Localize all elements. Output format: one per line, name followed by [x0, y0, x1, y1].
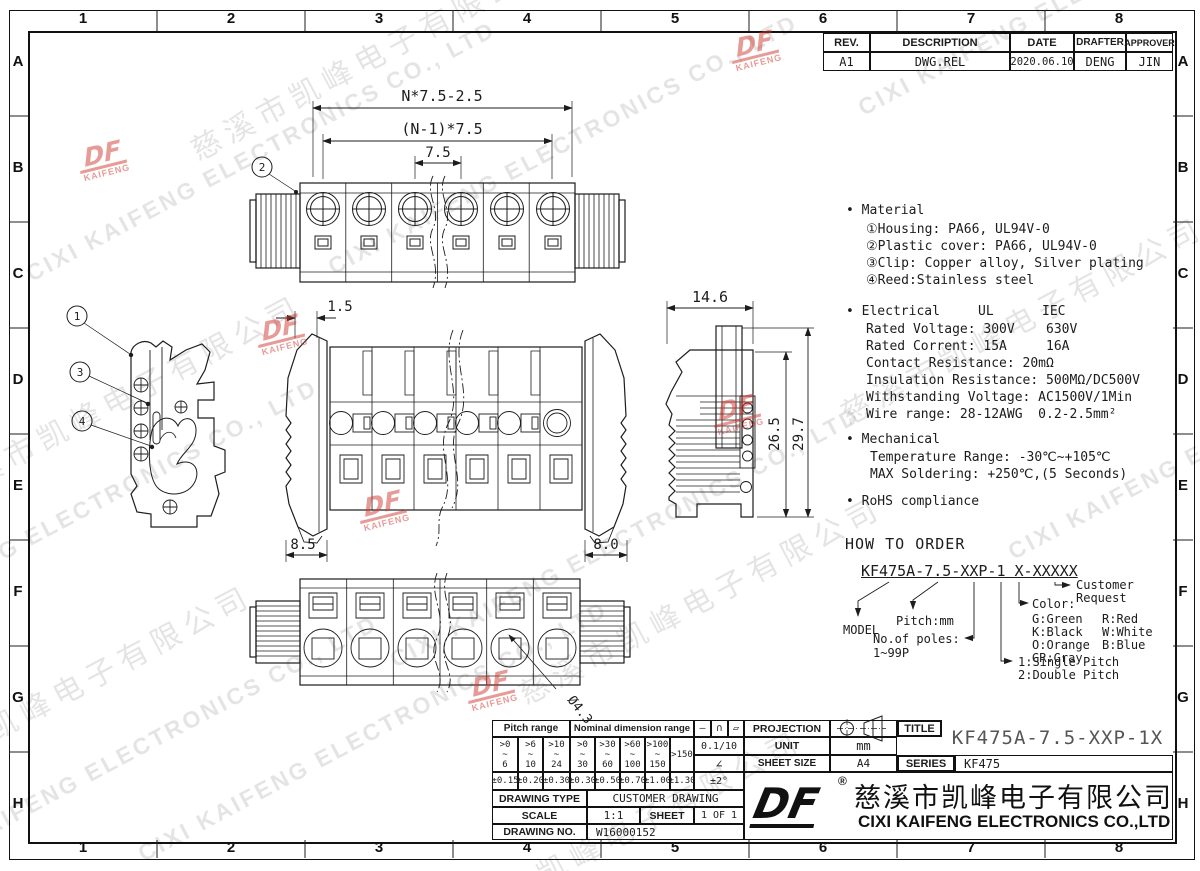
range-cell: >30~60	[595, 737, 620, 772]
order-color: GR:Gray	[1032, 651, 1083, 665]
range-tilde: ~	[548, 750, 564, 760]
tol-value: ±1.30	[670, 772, 694, 790]
dim-8-0: 8.0	[593, 537, 618, 553]
company-logo: DF	[749, 784, 822, 828]
unit-value: mm	[830, 737, 897, 755]
company-name-cn: 慈溪市凯峰电子有限公司	[854, 776, 1173, 815]
range-cell: >10~24	[543, 737, 570, 772]
range-hi: >30	[599, 740, 615, 750]
nominal-range-header: Nominal dimension range	[570, 720, 694, 737]
balloon-4: 4	[79, 415, 86, 428]
rev-header: DRAFTER	[1074, 33, 1126, 52]
mechanical-title: • Mechanical	[846, 432, 940, 447]
electrical-item: Contact Resistance: 20mΩ	[866, 356, 1054, 371]
view-section: 1 3 4	[67, 306, 225, 527]
range-cell: >0~30	[570, 737, 595, 772]
rev-value: 2020.06.10	[1010, 52, 1074, 71]
symbol-straightness: —	[694, 720, 711, 737]
electrical-item: Rated Voltage: 300V 630V	[866, 322, 1077, 337]
range-lo: 6	[500, 760, 511, 770]
balloon-3: 3	[77, 366, 84, 379]
material-item: ④Reed:Stainless steel	[866, 273, 1034, 288]
angle-tolerance: ±2°	[694, 772, 744, 790]
sheet-value: 1 OF 1	[694, 807, 744, 824]
range-hi: >0	[500, 740, 511, 750]
electrical-item: Wire range: 28-12AWG 0.2-2.5mm²	[866, 407, 1116, 422]
electrical-ul: UL	[978, 304, 994, 319]
drawing-type-label: DRAWING TYPE	[492, 790, 587, 807]
series-label: SERIES	[897, 755, 955, 772]
rev-header: DESCRIPTION	[870, 33, 1010, 52]
angle-symbol: ∠	[694, 755, 744, 772]
order-customer-label: Customer	[1076, 578, 1134, 592]
range-tilde: ~	[525, 750, 536, 760]
order-double-pitch: 2:Double Pitch	[1018, 668, 1119, 682]
sheet-size-value: A4	[830, 755, 897, 772]
order-color-label: Color:	[1032, 597, 1075, 611]
range-hi: >60	[624, 740, 640, 750]
order-title: HOW TO ORDER	[845, 535, 965, 553]
rev-value: DWG.REL	[870, 52, 1010, 71]
scale-value: 1:1	[587, 807, 640, 824]
projection-symbol-cell	[830, 720, 897, 737]
range-cell: >6~10	[518, 737, 543, 772]
dim-26-5: 26.5	[767, 417, 783, 451]
range-hi: >10	[548, 740, 564, 750]
electrical-iec: IEC	[1042, 304, 1065, 319]
material-item: ①Housing: PA66, UL94V-0	[866, 222, 1050, 237]
range-cell: >60~100	[620, 737, 645, 772]
tol-value: ±0.30	[570, 772, 595, 790]
range-tilde: ~	[647, 750, 669, 760]
view-top: N*7.5-2.5 (N-1)*7.5 7.5 2	[250, 87, 625, 288]
tol-value: ±0.15	[492, 772, 518, 790]
pitch-range-header: Pitch range	[492, 720, 570, 737]
drawing-no-label: DRAWING NO.	[492, 824, 587, 840]
order-color: K:Black	[1032, 625, 1083, 639]
tol-value: ±1.00	[645, 772, 670, 790]
dim-7-5: 7.5	[425, 145, 450, 161]
dim-n: N*7.5-2.5	[401, 87, 482, 105]
flatness-tolerance: 0.1/10	[694, 737, 744, 755]
tol-value: ±0.20	[518, 772, 543, 790]
material-item: ②Plastic cover: PA66, UL94V-0	[866, 239, 1097, 254]
electrical-item: Insulation Resistance: 500MΩ/DC500V	[866, 373, 1140, 388]
order-color: O:Orange	[1032, 638, 1090, 652]
electrical-item: Withstanding Voltage: AC1500V/1Min	[866, 390, 1132, 405]
rev-header: APPROVER	[1126, 33, 1173, 52]
dim-8-5: 8.5	[290, 537, 315, 553]
order-poles-value: 1~99P	[873, 646, 909, 660]
drawing-type-value: CUSTOMER DRAWING	[587, 790, 744, 807]
mechanical-item: MAX Soldering: +250℃,(5 Seconds)	[870, 467, 1127, 482]
range-cell: >100~150	[645, 737, 670, 772]
drawing-no-value: W16000152	[587, 824, 744, 840]
range-tilde: ~	[577, 750, 588, 760]
view-front: 1.5 8.5 8.0	[276, 299, 627, 562]
unit-label: UNIT	[744, 737, 830, 755]
view-bottom: Ø4.3	[250, 573, 630, 727]
range-hi: >0	[577, 740, 588, 750]
material-item: ③Clip: Copper alloy, Silver plating	[866, 256, 1144, 271]
mechanical-item: Temperature Range: -30℃~+105℃	[870, 450, 1111, 465]
tol-value: ±0.70	[620, 772, 645, 790]
sheet-size-label: SHEET SIZE	[744, 755, 830, 772]
sheet-label: SHEET	[640, 807, 694, 824]
balloon-1: 1	[74, 310, 81, 323]
order-code: KF475A-7.5-XXP-1 X-XXXXX	[861, 562, 1078, 580]
rev-value: A1	[823, 52, 870, 71]
order-color: R:Red	[1102, 612, 1138, 626]
electrical-item: Rated Corrent: 15A 16A	[866, 339, 1070, 354]
electrical-title: • Electrical	[846, 304, 940, 319]
series-value: KF475	[955, 755, 1173, 772]
order-color: B:Blue	[1102, 638, 1145, 652]
order-poles-label: No.of poles:	[873, 632, 960, 646]
company-name-en: CIXI KAIFENG ELECTRONICS CO.,LTD	[858, 812, 1170, 832]
range-tilde: ~	[624, 750, 640, 760]
range-lo: 150	[647, 760, 669, 770]
range-lo: 24	[548, 760, 564, 770]
symbol-arc: ∩	[711, 720, 728, 737]
title-label: TITLE	[897, 720, 942, 737]
view-side: 14.6 26.5 29.7	[666, 288, 814, 517]
range-cell-last: >150	[670, 737, 694, 772]
rohs-note: • RoHS compliance	[846, 494, 979, 509]
range-lo: 30	[577, 760, 588, 770]
symbol-flatness: ▱	[728, 720, 744, 737]
order-color: G:Green	[1032, 612, 1083, 626]
range-lo: 60	[599, 760, 615, 770]
range-lo: 10	[525, 760, 536, 770]
order-customer-label: Request	[1076, 591, 1127, 605]
dim-1-5: 1.5	[327, 299, 352, 315]
range-tilde: ~	[599, 750, 615, 760]
scale-label: SCALE	[492, 807, 587, 824]
range-lo: 100	[624, 760, 640, 770]
rev-value: JIN	[1126, 52, 1173, 71]
range-cell: >0~6	[492, 737, 518, 772]
tol-value: ±0.50	[595, 772, 620, 790]
balloon-2: 2	[259, 161, 266, 174]
drawing-sheet: 慈溪市凯峰电子有限公司 CIXI KAIFENG ELECTRONICS CO.…	[0, 0, 1200, 871]
projection-label: PROJECTION	[744, 720, 830, 737]
dim-29-7: 29.7	[791, 417, 807, 451]
order-pitch-label: Pitch:mm	[896, 614, 954, 628]
rev-header: DATE	[1010, 33, 1074, 52]
material-title: • Material	[846, 203, 924, 218]
dim-14-6: 14.6	[692, 288, 728, 306]
tol-value: ±0.30	[543, 772, 570, 790]
registered-mark: ®	[838, 774, 847, 788]
rev-value: DENG	[1074, 52, 1126, 71]
drawing-title: KF475A-7.5-XXP-1X	[942, 718, 1173, 757]
range-hi: >6	[525, 740, 536, 750]
range-hi: >100	[647, 740, 669, 750]
order-color: W:White	[1102, 625, 1153, 639]
range-tilde: ~	[500, 750, 511, 760]
dim-n1: (N-1)*7.5	[401, 120, 482, 138]
rev-header: REV.	[823, 33, 870, 52]
